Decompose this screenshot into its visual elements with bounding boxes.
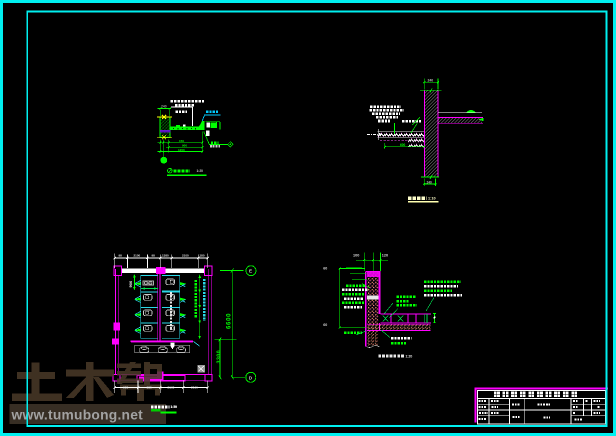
svg-text:2100: 2100 — [134, 254, 141, 258]
svg-text:6600: 6600 — [227, 313, 233, 329]
svg-text:2100: 2100 — [182, 254, 189, 258]
svg-text:150: 150 — [179, 139, 184, 143]
svg-text:1:10: 1:10 — [428, 197, 436, 201]
svg-text:120: 120 — [382, 253, 388, 257]
svg-text:100: 100 — [353, 253, 359, 257]
svg-text:60: 60 — [323, 323, 327, 327]
svg-text:1:50: 1:50 — [171, 405, 178, 409]
svg-text:3300: 3300 — [217, 350, 223, 364]
svg-text:980: 980 — [147, 385, 152, 389]
svg-text:1380: 1380 — [162, 254, 169, 258]
svg-text:2160: 2160 — [168, 385, 175, 389]
svg-text:240: 240 — [427, 180, 433, 184]
svg-text:98: 98 — [152, 254, 156, 258]
svg-text:240: 240 — [161, 105, 167, 109]
svg-text:1000: 1000 — [144, 282, 152, 286]
svg-text:2160: 2160 — [191, 385, 198, 389]
svg-text:600: 600 — [400, 143, 406, 147]
svg-text:1:20: 1:20 — [406, 354, 413, 358]
svg-text:www.tumubong.net: www.tumubong.net — [11, 407, 144, 422]
svg-text:E: E — [249, 269, 252, 274]
svg-text:1:20: 1:20 — [197, 169, 204, 173]
svg-text:60: 60 — [323, 266, 327, 270]
svg-text:980: 980 — [123, 385, 128, 389]
svg-text:900: 900 — [128, 280, 133, 287]
svg-text:240: 240 — [428, 79, 434, 83]
svg-text:180: 180 — [200, 254, 205, 258]
svg-text:98: 98 — [119, 254, 123, 258]
svg-text:1200: 1200 — [178, 148, 185, 152]
